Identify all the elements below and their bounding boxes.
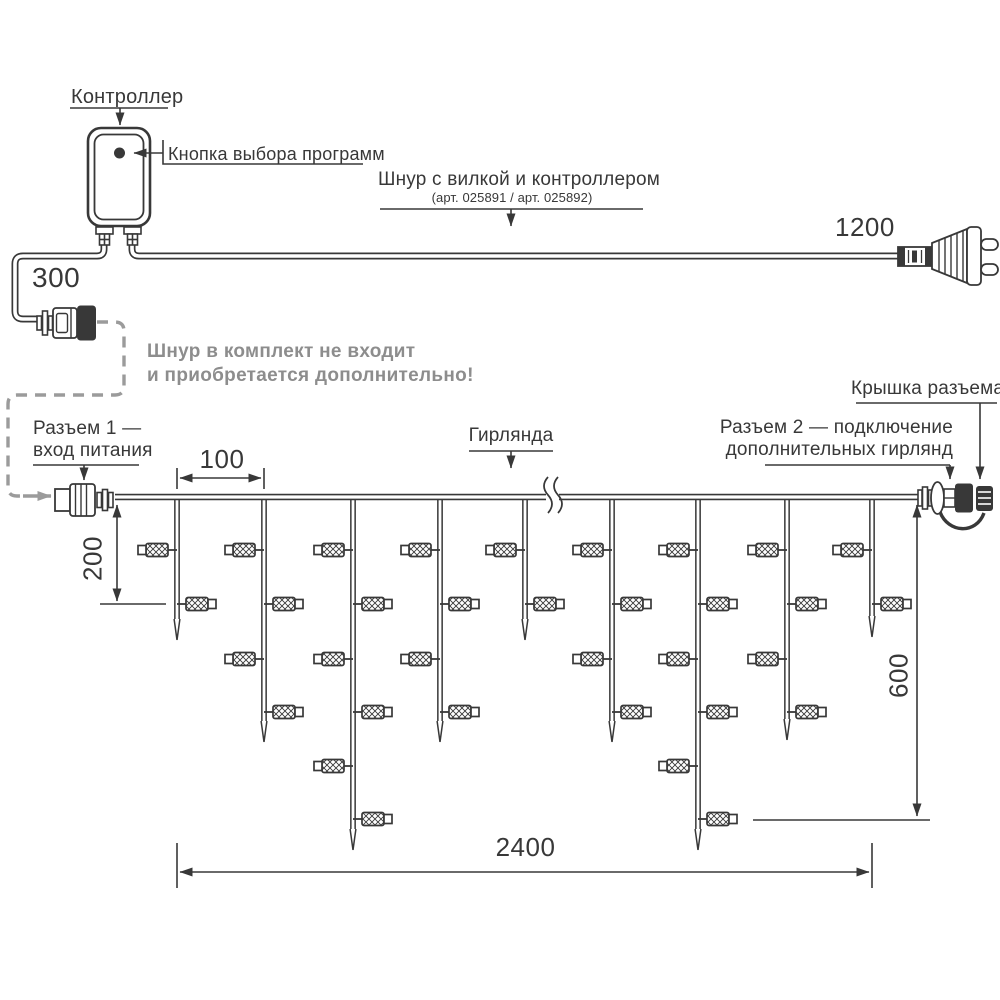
light-bulb	[401, 653, 440, 666]
garland-drop	[486, 499, 564, 640]
garland-drop	[659, 499, 737, 850]
light-bulb	[314, 544, 353, 557]
garland-drops	[138, 499, 911, 850]
drop-tip	[609, 721, 615, 742]
dim-1200-label: 1200	[835, 212, 895, 243]
garland-start-connector-icon	[55, 484, 113, 516]
light-bulb	[486, 544, 525, 557]
drop-tip	[869, 616, 875, 637]
light-bulb	[225, 544, 264, 557]
connector-cap-label: Крышка разъема	[851, 378, 999, 399]
drop-tip	[261, 721, 267, 742]
dim-100-label: 100	[186, 444, 258, 475]
light-bulb	[525, 598, 564, 611]
cable-gland	[124, 227, 141, 245]
light-bulb	[748, 653, 787, 666]
light-bulb	[353, 598, 392, 611]
cap-tether	[940, 512, 984, 529]
light-bulb	[872, 598, 911, 611]
light-bulb	[748, 544, 787, 557]
light-bulb	[573, 653, 612, 666]
light-bulb	[787, 706, 826, 719]
light-bulb	[264, 706, 303, 719]
drop-tip	[695, 829, 701, 850]
garland-drop	[833, 499, 911, 637]
cable-gland	[96, 227, 113, 245]
note-line-2: и приобретается дополнительно!	[147, 365, 474, 387]
light-bulb	[401, 544, 440, 557]
connector1-label-line2: вход питания	[33, 440, 153, 461]
garland-drop	[401, 499, 479, 742]
light-bulb	[440, 598, 479, 611]
plug-pin	[981, 264, 998, 275]
light-bulb	[138, 544, 177, 557]
power-cords	[15, 243, 902, 319]
connector2-body	[955, 484, 973, 513]
dimension-lines	[100, 468, 930, 888]
power-cord-articles: (арт. 025891 / арт. 025892)	[378, 191, 646, 206]
drop-tip	[784, 719, 790, 740]
light-bulb	[314, 760, 353, 773]
connector2-label-line2: дополнительных гирлянд	[700, 439, 953, 460]
dim-600-label: 600	[884, 640, 915, 712]
dim-200-label: 200	[78, 523, 109, 595]
controller-label: Контроллер	[71, 86, 183, 108]
connector1-label-line1: Разъем 1 —	[33, 418, 141, 439]
power-plug-icon	[898, 227, 998, 285]
note-line-1: Шнур в комплект не входит	[147, 341, 415, 363]
garland-label: Гирлянда	[468, 425, 554, 446]
light-bulb	[698, 813, 737, 826]
diagram-canvas: Контроллер Кнопка выбора программ Шнур с…	[0, 0, 1000, 1000]
light-bulb	[659, 544, 698, 557]
garland-drop	[314, 499, 392, 850]
light-bulb	[612, 706, 651, 719]
light-bulb	[612, 598, 651, 611]
plug-pin	[981, 239, 998, 250]
drop-tip	[350, 829, 356, 850]
light-bulb	[353, 813, 392, 826]
light-bulb	[659, 760, 698, 773]
connector2-label-line1: Разъем 2 — подключение	[700, 417, 953, 438]
garland-end-connector-icon	[918, 482, 993, 529]
light-bulb	[314, 653, 353, 666]
light-bulb	[353, 706, 392, 719]
garland-drop	[573, 499, 651, 742]
light-bulb	[698, 598, 737, 611]
light-bulb	[225, 653, 264, 666]
drop-tip	[174, 619, 180, 640]
dim-2400-label: 2400	[483, 832, 568, 863]
drop-tip	[437, 721, 443, 742]
light-bulb	[659, 653, 698, 666]
light-bulb	[698, 706, 737, 719]
light-bulb	[440, 706, 479, 719]
program-button-dot	[114, 148, 125, 159]
controller-box	[88, 128, 150, 245]
program-button-label: Кнопка выбора программ	[168, 144, 385, 164]
garland-drop	[748, 499, 826, 740]
cord-connector-icon	[37, 306, 96, 341]
light-bulb	[264, 598, 303, 611]
light-bulb	[787, 598, 826, 611]
connector-cap-icon	[976, 486, 993, 511]
power-cord-label: Шнур с вилкой и контроллером	[378, 169, 646, 190]
dim-300-label: 300	[32, 262, 80, 294]
light-bulb	[573, 544, 612, 557]
plug-cord	[132, 243, 902, 256]
drop-tip	[522, 619, 528, 640]
garland-wire	[115, 477, 918, 513]
light-bulb	[833, 544, 872, 557]
light-bulb	[177, 598, 216, 611]
dashed-route	[8, 322, 124, 496]
garland-drop	[138, 499, 216, 640]
garland-drop	[225, 499, 303, 742]
